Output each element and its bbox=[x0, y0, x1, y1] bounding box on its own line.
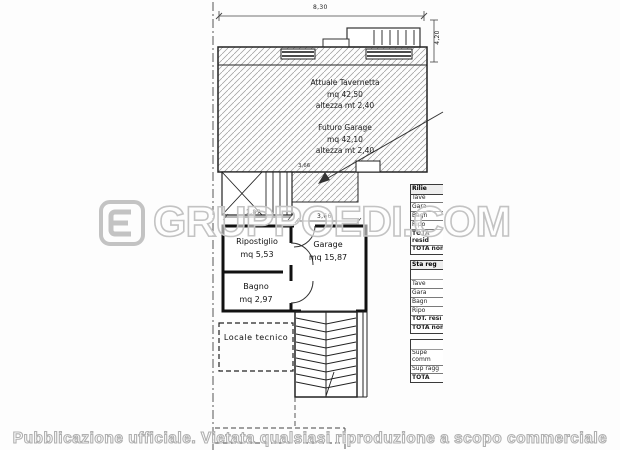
locale-tecnico-name: Locale tecnico bbox=[221, 332, 291, 345]
tavernetta-title: Attuale Tavernetta bbox=[265, 77, 425, 89]
table-row: TOT. resi bbox=[411, 316, 443, 325]
futuro-garage-title: Futuro Garage bbox=[265, 122, 425, 134]
table-row: TOTA bbox=[411, 374, 443, 382]
bagno-mq: mq 2,97 bbox=[226, 294, 286, 307]
table-row: Sup ragg bbox=[411, 366, 443, 375]
floor-plan-page: 8,30 4,20 3,66 1,87 3,66 Attuale Taverne… bbox=[0, 0, 620, 450]
ripostiglio-name: Ripostiglio bbox=[226, 236, 288, 249]
dim-right-height: 4,20 bbox=[434, 30, 441, 45]
garage-mq: mq 15,87 bbox=[297, 252, 359, 265]
summary-table-stato: Sta reg Tave Gara Bagn Ripo TOT. resi TO… bbox=[410, 260, 443, 334]
table-spacer bbox=[411, 270, 443, 280]
label-bagno: Bagno mq 2,97 bbox=[226, 281, 286, 307]
bagno-name: Bagno bbox=[226, 281, 286, 294]
futuro-garage-height: altezza mt 2,40 bbox=[265, 145, 425, 157]
table-row: Tave bbox=[411, 195, 443, 204]
table-header: Sta reg bbox=[411, 261, 443, 271]
table-row: Ripo bbox=[411, 307, 443, 316]
summary-tables: Rilie Tave Gara Bagn Ripo TOTA resid TOT… bbox=[410, 184, 443, 388]
table-header: Rilie bbox=[411, 185, 443, 195]
table-row: Gara bbox=[411, 289, 443, 298]
table-row: Ripo bbox=[411, 221, 443, 230]
summary-table-superfici: Supe comm Sup ragg TOTA bbox=[410, 339, 443, 384]
table-row: Supe comm bbox=[411, 350, 443, 366]
floor-plan-linework bbox=[0, 0, 620, 450]
table-spacer bbox=[411, 340, 443, 350]
table-row: Tave bbox=[411, 280, 443, 289]
footer-disclaimer: Pubblicazione ufficiale. Vietata qualsia… bbox=[0, 430, 620, 448]
tavernetta-mq: mq 42,50 bbox=[265, 89, 425, 101]
futuro-garage-mq: mq 42,10 bbox=[265, 134, 425, 146]
table-row: Bagn bbox=[411, 298, 443, 307]
label-tavernetta: Attuale Tavernetta mq 42,50 altezza mt 2… bbox=[265, 77, 425, 112]
ripostiglio-mq: mq 5,53 bbox=[226, 249, 288, 262]
tavernetta-height: altezza mt 2,40 bbox=[265, 100, 425, 112]
table-row: TOTA non bbox=[411, 246, 443, 254]
dim-garage-front: 3,66 bbox=[317, 213, 332, 220]
staircase-lower bbox=[295, 311, 367, 397]
skylight-grate bbox=[347, 28, 420, 47]
skylight-small bbox=[323, 39, 349, 47]
garage-name: Garage bbox=[297, 239, 359, 252]
table-row: TOTA non bbox=[411, 325, 443, 333]
wall-opening bbox=[356, 161, 380, 172]
table-row: Gara bbox=[411, 203, 443, 212]
dim-top-width: 8,30 bbox=[313, 4, 328, 11]
label-futuro-garage: Futuro Garage mq 42,10 altezza mt 2,40 bbox=[265, 122, 425, 157]
dim-hatch-opening: 3,66 bbox=[298, 163, 310, 169]
label-garage: Garage mq 15,87 bbox=[297, 239, 359, 265]
table-row: TOTA resid bbox=[411, 230, 443, 246]
label-locale-tecnico: Locale tecnico bbox=[221, 332, 291, 345]
dim-stair-width: 1,87 bbox=[246, 209, 261, 216]
label-ripostiglio: Ripostiglio mq 5,53 bbox=[226, 236, 288, 262]
summary-table-rilievo: Rilie Tave Gara Bagn Ripo TOTA resid TOT… bbox=[410, 184, 443, 255]
locale-tecnico-outline bbox=[219, 323, 293, 371]
table-row: Bagn bbox=[411, 212, 443, 221]
